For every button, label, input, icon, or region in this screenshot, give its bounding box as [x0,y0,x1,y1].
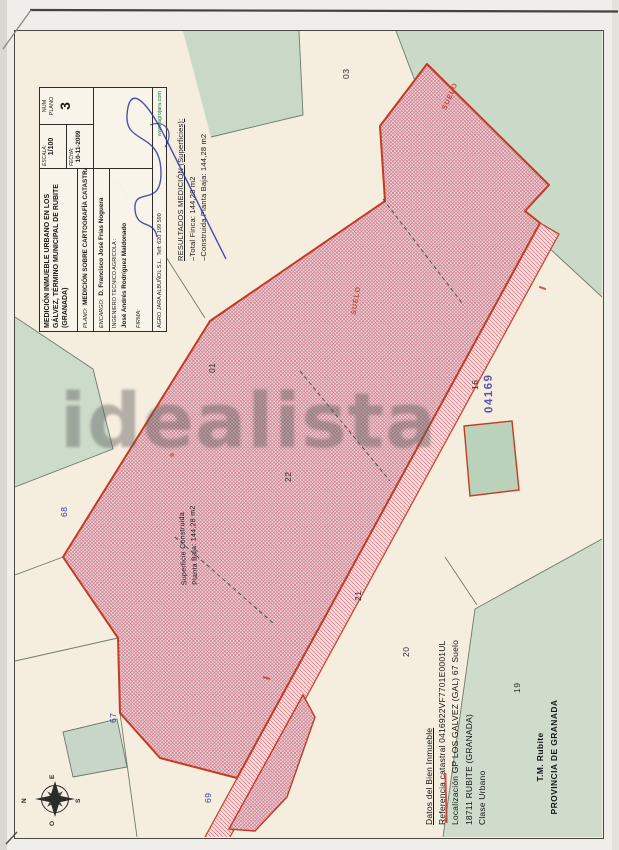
title-block-footer: AGRO JARA ALBUÑOL S.L. Telf: 620 199 590… [152,88,166,331]
blue-number-69: 69 [203,793,213,803]
title-block-main: MEDICIÓN INMUEBLE URBANO EN LOS GÁLVEZ, … [40,88,152,331]
parcel-number-01: 01 [207,363,217,373]
parcel-number-22: 22 [283,472,293,482]
cadastral-reference-line: Referencia catastral 0416922VF7701E0001U… [436,540,449,825]
rotated-drawing: N E S O 03 01 16 22 21 20 19 68 67 69 04… [15,31,602,837]
company-phone: Telf: 620 199 590 [157,213,163,255]
scan-left-shadow [0,0,7,850]
scan-right-shadow [612,0,619,850]
parcel-number-19: 19 [512,683,522,693]
municipality-block: T.M. Rubite PROVINCIA DE GRANADA [533,682,562,832]
date-value: 10-11-2009 [75,127,82,166]
plano-value: MEDICIÓN SOBRE CARTOGRAFÍA CATASTRAL [82,169,89,305]
company-text: AGRO JARA ALBUÑOL S.L. [157,259,163,329]
municipality-line2: PROVINCIA DE GRANADA [547,682,561,832]
encargo-row: ENCARGO: D. Francisco José Frías Noguera [94,169,110,331]
municipality-line1: T.M. Rubite [533,682,547,832]
plan-number-value: 3 [57,88,73,124]
plan-number-box: NUM PLANO 3 [40,88,93,124]
document-title: MEDICIÓN INMUEBLE URBANO EN LOS GÁLVEZ, … [40,169,78,331]
results-heading: RESULTADOS MEDICIÓN (Superficies): [175,51,187,261]
blue-number-67: 67 [108,713,118,723]
class-line: Clase Urbano [476,540,489,825]
title-block-right-column: ESCALA: 1/100 FECHA: 10-11-2009 NUM [40,88,152,168]
encargo-label: ENCARGO: [99,299,105,328]
property-data-block: Datos del Bien Inmueble Referencia catas… [423,540,489,825]
scale-date-stack: ESCALA: 1/100 FECHA: 10-11-2009 [40,124,93,168]
signature-area [94,88,152,168]
green-quad-red-outline [464,421,519,496]
location-line: Localización GP LOS GALVEZ (GAL) 67 Suel… [449,540,462,825]
num-label: NUM [42,88,49,124]
title-block: MEDICIÓN INMUEBLE URBANO EN LOS GÁLVEZ, … [39,87,167,332]
scanned-cadastral-document: N E S O 03 01 16 22 21 20 19 68 67 69 04… [0,0,619,850]
results-total-line: –Total Finca: 144,28 m2 [187,51,199,261]
compass-s-label: S [75,799,82,803]
plano-label: PLANO: [83,308,89,328]
plano-num-label: PLANO [49,88,56,124]
compass-n-label: N [21,798,28,803]
compass-e-label: E [49,775,56,779]
parcel-number-03: 03 [341,69,351,79]
scan-top-edge-line [30,10,618,12]
results-built-line: –Construida Planta Baja: 144,28 m2 [198,51,210,261]
engineer-name: José Andrés Rodríguez Maldonado [120,172,129,328]
parcel-number-21: 21 [353,591,363,601]
engineer-label: INGENIERO TECNICO AGRICOLA : [112,172,120,328]
scale-box: ESCALA: 1/100 [40,125,67,168]
company-website: www.agrojara.com [157,91,163,136]
drawing-frame: N E S O 03 01 16 22 21 20 19 68 67 69 04… [14,30,604,839]
registry-stamp-number: 04169 [483,373,496,413]
measurement-results-block: RESULTADOS MEDICIÓN (Superficies): –Tota… [175,51,210,261]
property-data-heading: Datos del Bien Inmueble [423,540,436,825]
orange-mark [170,453,174,457]
scale-date-num-row: ESCALA: 1/100 FECHA: 10-11-2009 NUM [40,88,94,168]
company-name: AGRO JARA ALBUÑOL S.L. Telf: 620 199 590 [157,213,163,328]
built-surface-annotation: Superficie Construida Planta Baja: 144,2… [178,505,202,585]
title-block-left-column: MEDICIÓN INMUEBLE URBANO EN LOS GÁLVEZ, … [40,168,152,331]
parcel-number-20: 20 [401,647,411,657]
encargo-value: D. Francisco José Frías Noguera [98,198,105,296]
plano-row: PLANO: MEDICIÓN SOBRE CARTOGRAFÍA CATAST… [78,169,94,331]
date-box: FECHA: 10-11-2009 [67,125,94,168]
scale-value: 1/100 [48,127,55,166]
engineer-row: INGENIERO TECNICO AGRICOLA : José Andrés… [110,169,152,331]
postal-line: 18711 RUBITE (GRANADA) [463,540,476,825]
compass-o-label: O [49,821,56,826]
firma-label: FIRMA: [136,172,144,328]
blue-number-68: 68 [59,507,69,517]
parcel-number-16: 16 [470,380,480,390]
